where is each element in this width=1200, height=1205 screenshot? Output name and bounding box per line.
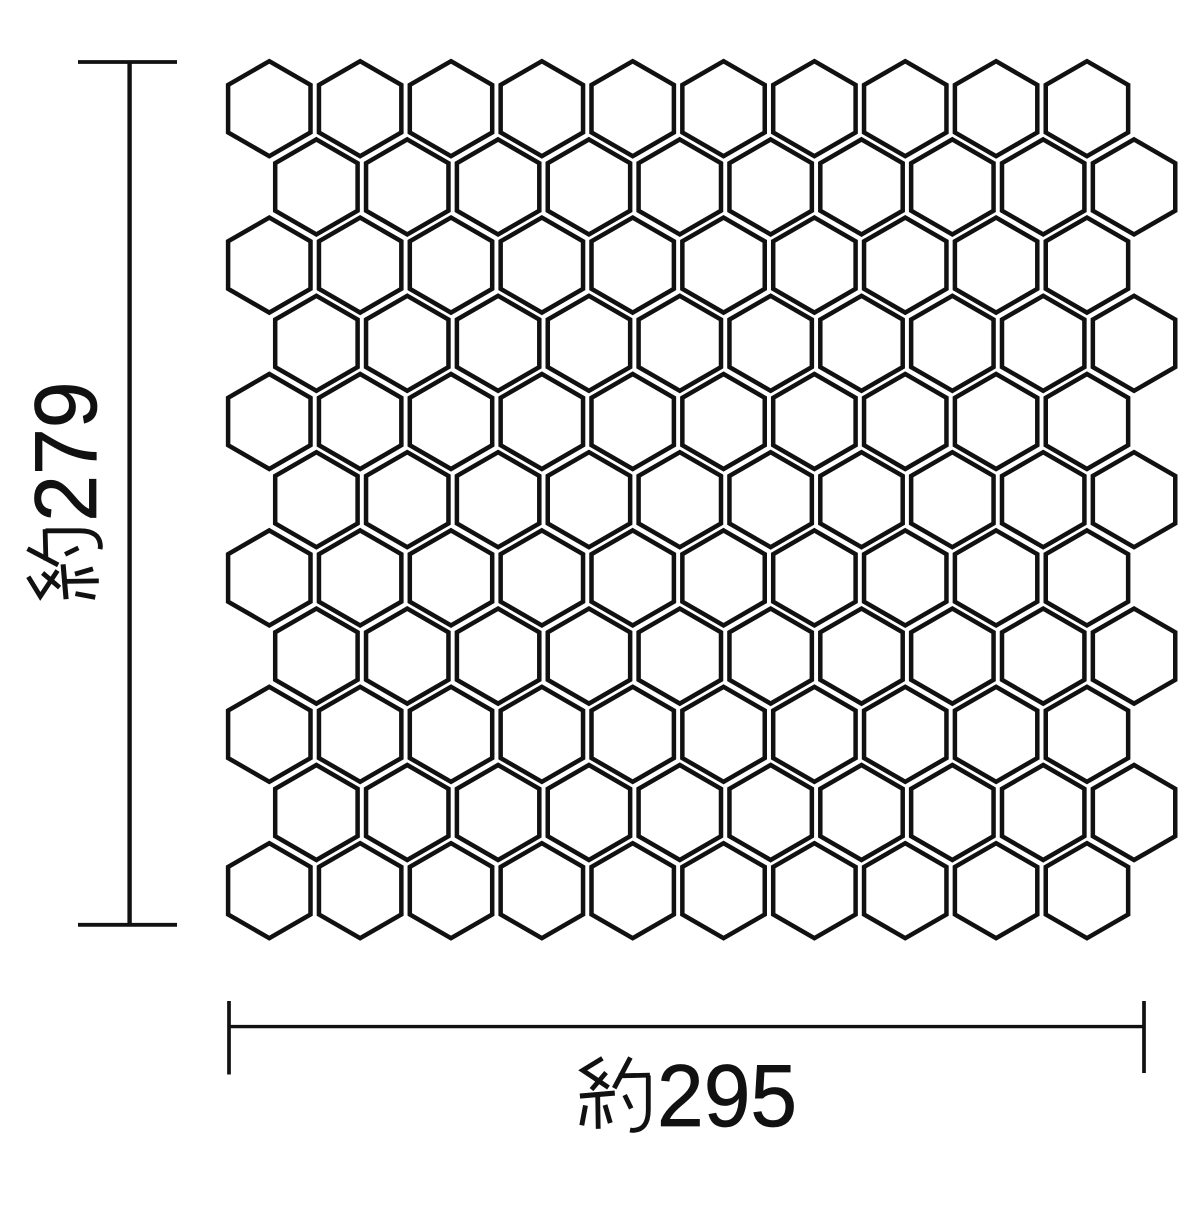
svg-text:279: 279: [17, 382, 116, 522]
svg-text:295: 295: [657, 1047, 797, 1146]
